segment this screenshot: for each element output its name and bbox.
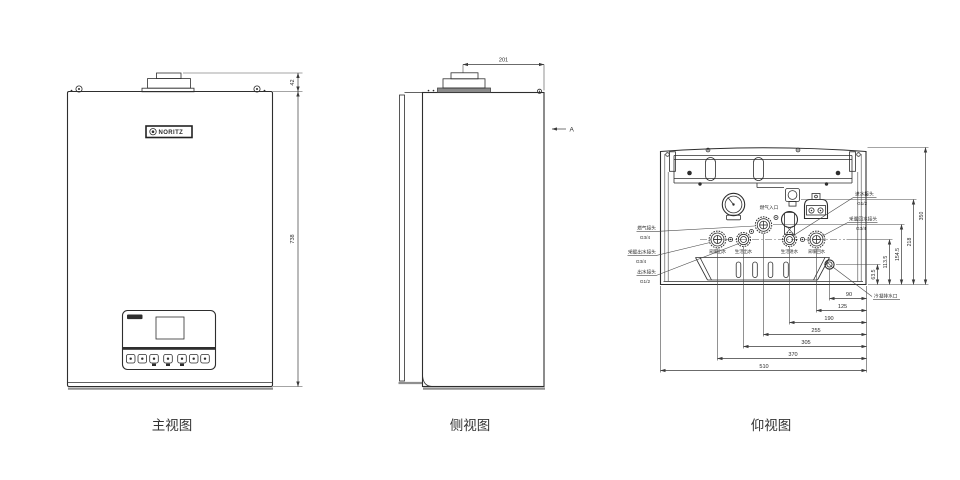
callout-name: 采暖出水接头: [628, 249, 656, 256]
port-label: 生活出水: [735, 248, 753, 255]
vent-slot-icon: [753, 262, 758, 278]
view-direction-arrow: A: [552, 127, 575, 134]
pressure-gauge-icon: [722, 193, 744, 220]
boiler-body-side: [423, 93, 546, 389]
vent-tray: [696, 258, 830, 281]
control-panel: [123, 311, 216, 370]
wall-bracket-plate: [399, 93, 423, 384]
dim-text: 90: [846, 292, 852, 298]
panel-button: [138, 354, 147, 363]
vent-slot-icon: [736, 262, 741, 278]
bottom-view-title: 仰视图: [751, 418, 792, 433]
bottom-view: 燃气入口: [628, 148, 929, 434]
technical-drawing: NORITZ 42: [0, 0, 960, 480]
callout-size: G3/4: [856, 226, 867, 231]
dim-text: 63.5: [871, 269, 877, 279]
front-view-title: 主视图: [152, 418, 193, 433]
callout-name: 燃气接头: [637, 225, 656, 232]
front-view: NORITZ 42: [68, 73, 303, 433]
keyhole-slot-icon: [754, 158, 764, 181]
dim-text: 190: [824, 316, 833, 322]
port-label: 生活进水: [781, 248, 799, 255]
dim-text: 113.5: [883, 256, 889, 269]
flue-outlet-side-icon: [428, 73, 542, 94]
panel-button: [201, 354, 210, 363]
dim-text: 154.5: [895, 248, 901, 261]
port-label: 采暖回水: [808, 248, 826, 255]
callout-size: G1/2: [640, 279, 651, 284]
callout-size: G3/4: [636, 259, 647, 264]
view-arrow-label: A: [570, 127, 575, 134]
callout-size: G3/4: [640, 235, 651, 240]
panel-button: [189, 354, 198, 363]
dim-text: 305: [801, 340, 810, 346]
brand-logo: NORITZ: [146, 126, 192, 138]
horizontal-dimensions: 90 125 190 255 305 370 510: [661, 234, 867, 373]
corner-tab-left: [670, 152, 676, 172]
corner-tab-right: [850, 152, 856, 172]
gas-inlet-label: 燃气入口: [760, 204, 779, 211]
callout-name: 进水接头: [855, 191, 874, 198]
side-view-title: 侧视图: [450, 418, 491, 433]
side-view: 201 A 侧视图: [399, 58, 575, 434]
dimension-flue-height: 42: [183, 73, 303, 92]
dim-text: 510: [759, 364, 768, 370]
dim-text: 370: [788, 352, 797, 358]
panel-logo: [127, 315, 143, 320]
dim-text-738: 738: [290, 234, 296, 243]
lcd-display: [156, 317, 184, 339]
port-labels: 采暖出水 生活出水 生活进水 采暖回水: [709, 248, 826, 255]
panel-buttons: [126, 354, 209, 366]
dim-text: 350: [919, 212, 925, 221]
keyhole-slot-icon: [706, 158, 716, 181]
drain-label: 冷凝排水口: [874, 293, 898, 300]
callout-name: 出水接头: [637, 269, 656, 276]
dim-text: 125: [838, 304, 847, 310]
drawing-sheet: NORITZ 42: [0, 0, 960, 480]
terminal-bracket: [805, 194, 828, 219]
panel-button: [178, 354, 187, 366]
panel-button: [164, 354, 173, 366]
vent-slot-icon: [768, 262, 773, 278]
gas-inlet-port: 燃气入口: [750, 204, 779, 234]
dim-text-201: 201: [499, 58, 508, 64]
flue-outlet-icon: [142, 73, 194, 92]
dim-text: 218: [907, 238, 913, 247]
callout-heating-return-connector: 采暖回水接头 G3/4: [823, 216, 878, 237]
dimension-flue-to-front: 201: [463, 58, 544, 91]
dim-text-42: 42: [290, 79, 296, 85]
dim-text: 255: [811, 328, 820, 334]
logo-text: NORITZ: [159, 130, 184, 136]
panel-button: [126, 354, 135, 363]
callout-gas-connector: 燃气接头 G3/4: [637, 225, 755, 241]
panel-button: [150, 354, 159, 366]
callout-size: G1/2: [857, 201, 868, 206]
callout-name: 采暖回水接头: [849, 216, 877, 223]
condensate-drain-port: [825, 260, 834, 269]
dimension-body-height: 738: [273, 92, 303, 387]
vent-slot-icon: [784, 262, 789, 278]
mounting-rail: [666, 148, 861, 186]
